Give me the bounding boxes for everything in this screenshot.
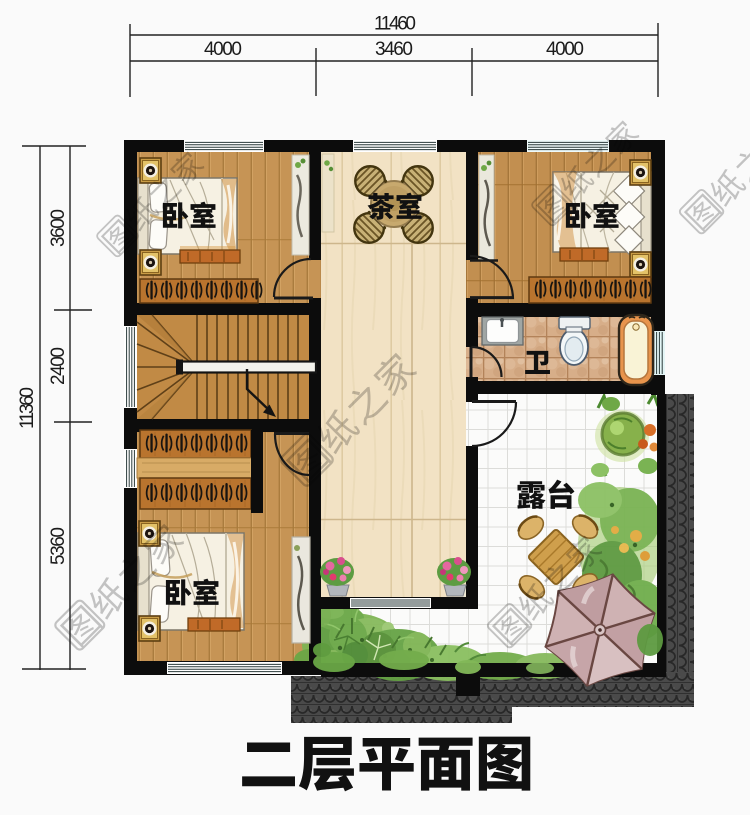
svg-text:4000: 4000	[546, 39, 584, 60]
svg-text:11460: 11460	[374, 14, 416, 35]
svg-text:5360: 5360	[48, 527, 69, 565]
svg-text:4000: 4000	[204, 39, 242, 60]
svg-text:2400: 2400	[48, 347, 69, 385]
svg-text:3600: 3600	[48, 209, 69, 247]
svg-text:3460: 3460	[375, 39, 413, 60]
svg-text:11360: 11360	[17, 387, 38, 429]
